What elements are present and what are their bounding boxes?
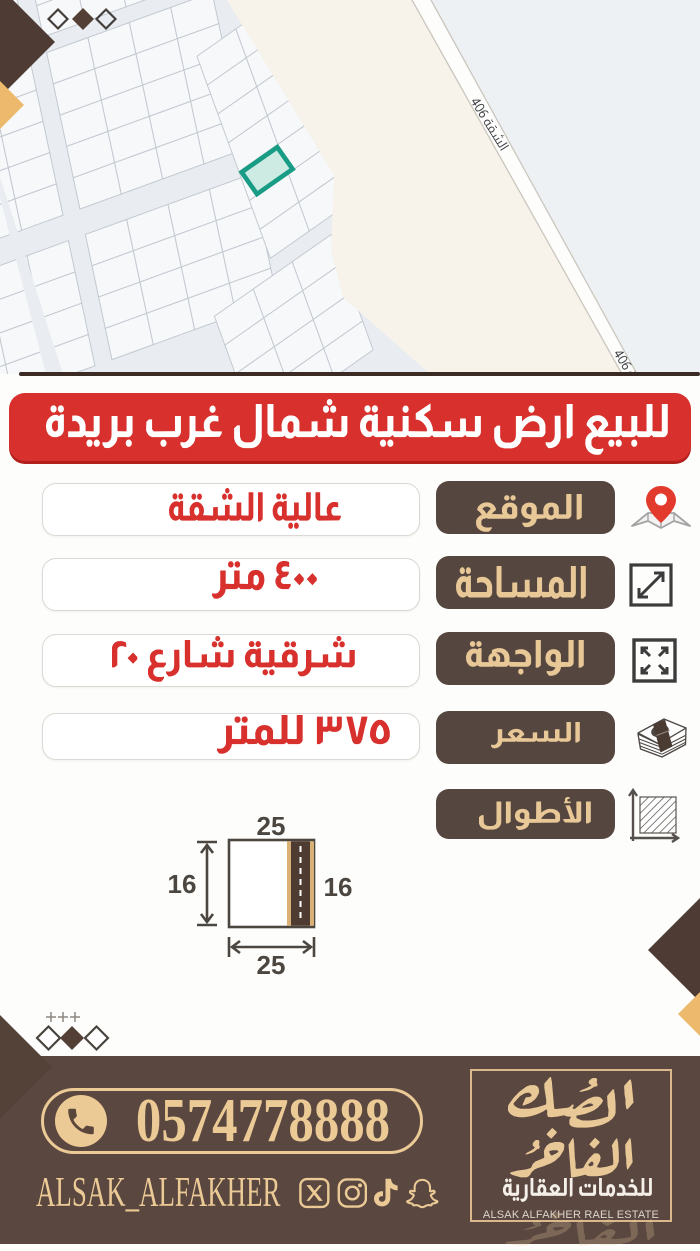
svg-text:16: 16 — [324, 872, 353, 902]
svg-text:25: 25 — [257, 950, 286, 980]
svg-text:16: 16 — [168, 869, 197, 899]
svg-text:25: 25 — [257, 811, 286, 841]
